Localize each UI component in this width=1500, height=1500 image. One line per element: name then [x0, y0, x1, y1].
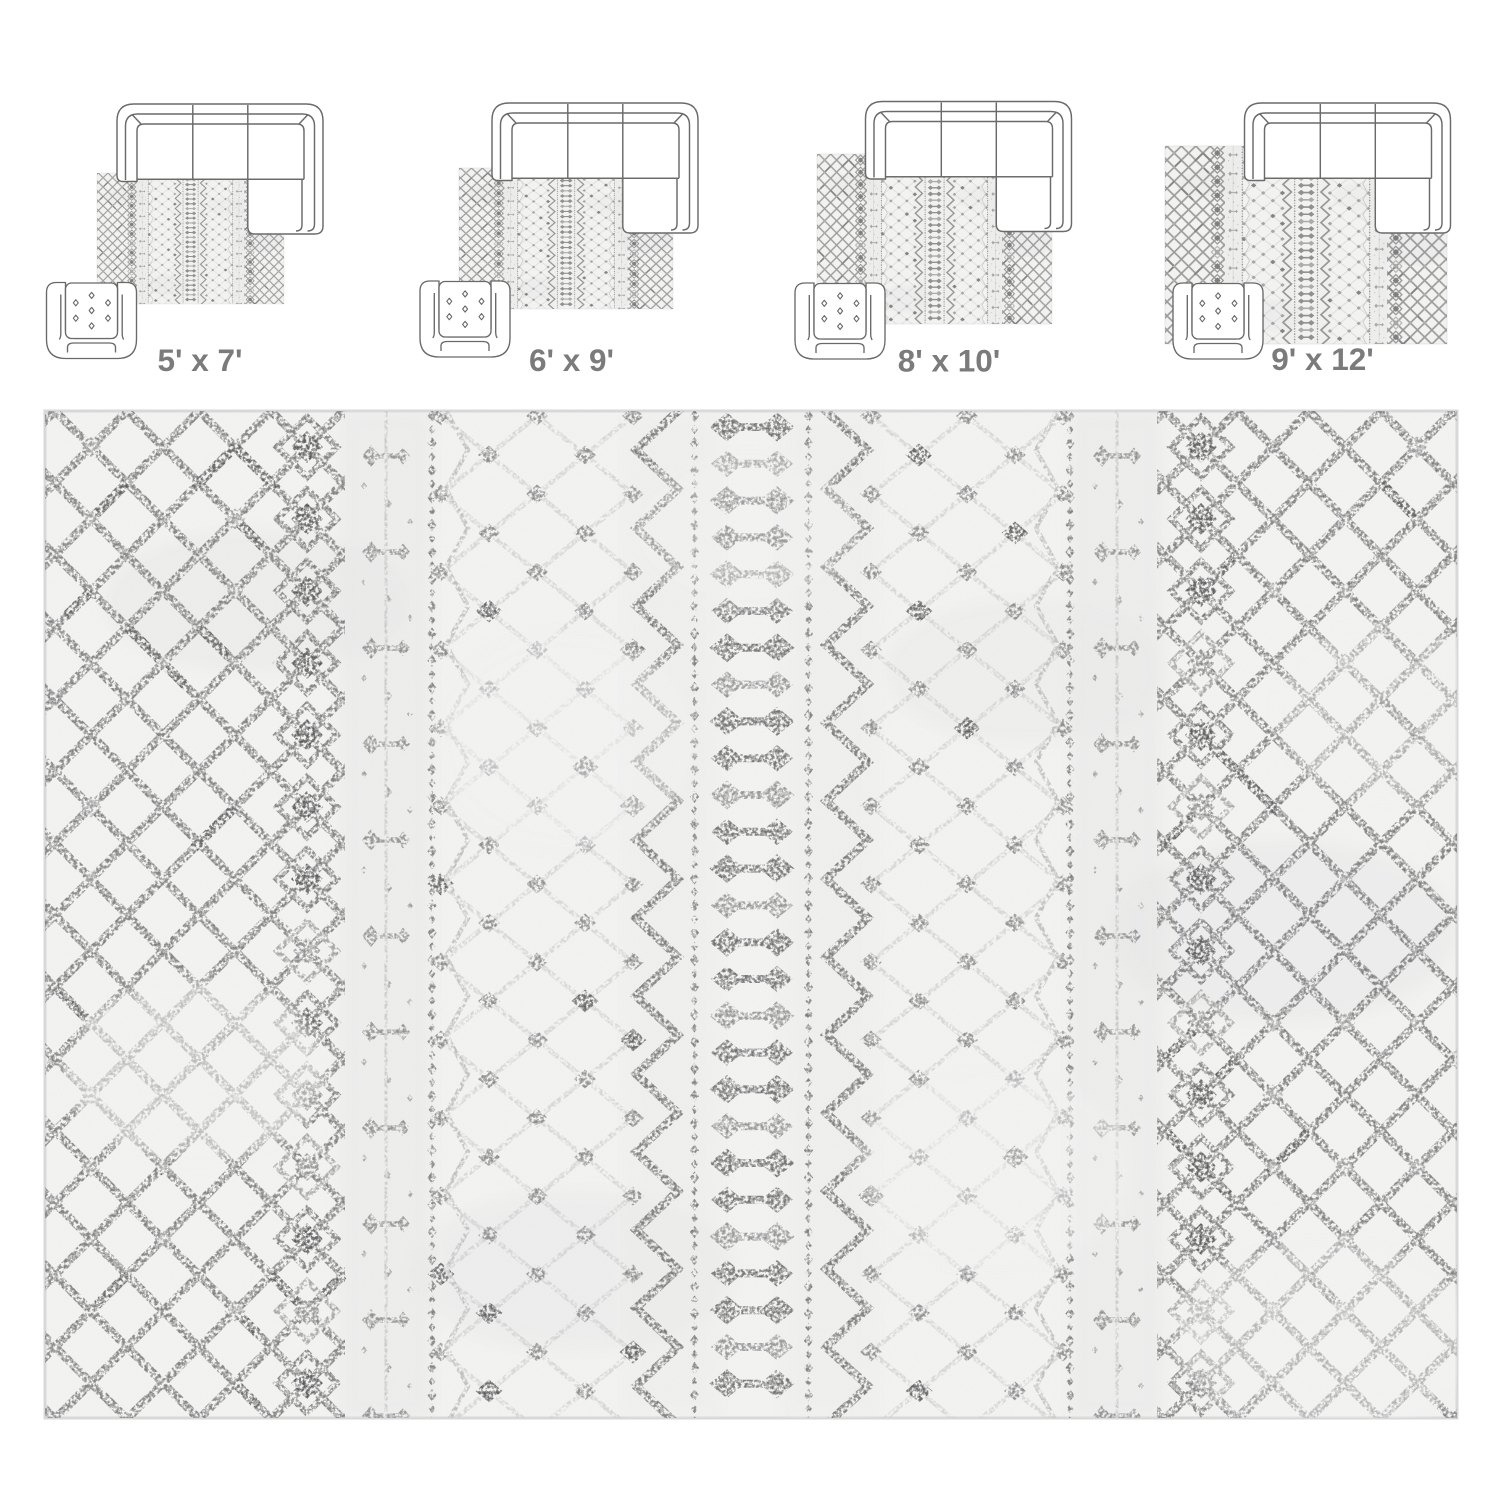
- svg-text:8' x 10': 8' x 10': [898, 343, 1001, 379]
- svg-text:9' x 12': 9' x 12': [1271, 341, 1374, 377]
- svg-text:5' x 7': 5' x 7': [157, 342, 242, 378]
- svg-text:6' x 9': 6' x 9': [529, 342, 614, 378]
